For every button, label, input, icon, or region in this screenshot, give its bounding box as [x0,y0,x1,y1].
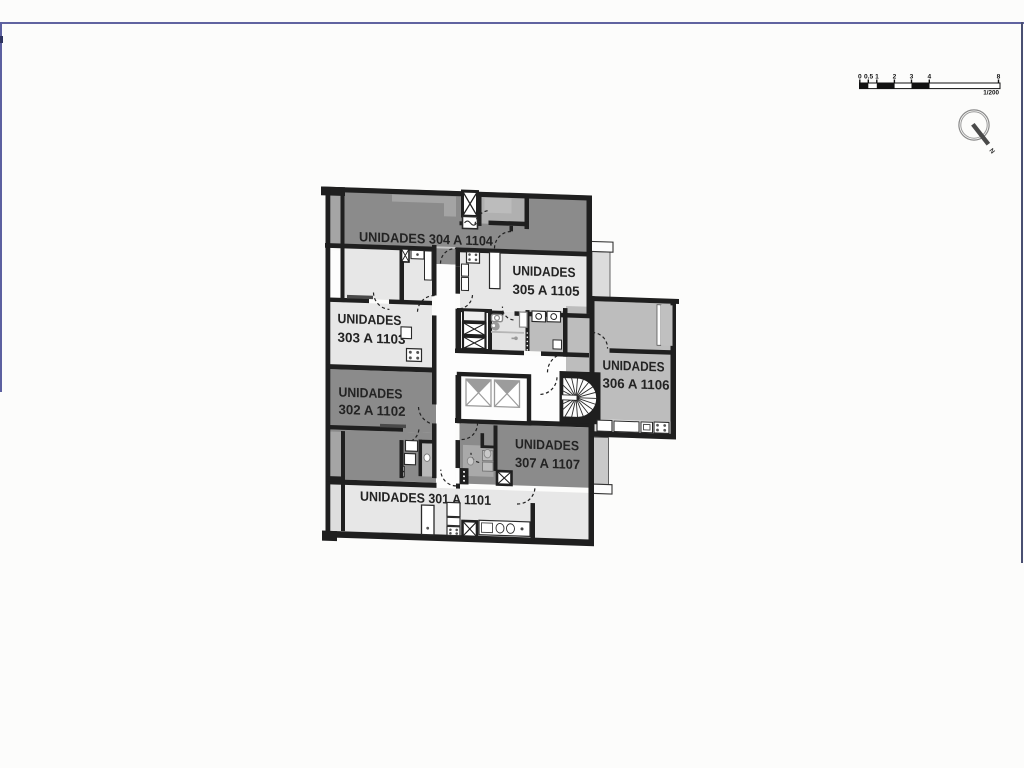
svg-text:UNIDADES: UNIDADES [602,358,664,375]
svg-text:2: 2 [893,74,897,81]
svg-text:306 A 1106: 306 A 1106 [602,376,669,393]
svg-text:307 A 1107: 307 A 1107 [515,455,580,472]
svg-text:0: 0 [858,74,862,81]
svg-text:305 A 1105: 305 A 1105 [513,282,581,299]
svg-text:4: 4 [927,74,931,81]
svg-text:303 A 1103: 303 A 1103 [338,330,406,347]
svg-text:UNIDADES: UNIDADES [338,311,402,328]
svg-text:1: 1 [875,74,879,81]
svg-text:UNIDADES: UNIDADES [339,385,403,402]
svg-text:0.5: 0.5 [864,74,873,81]
svg-text:UNIDADES: UNIDADES [513,263,576,280]
svg-text:3: 3 [910,74,914,81]
svg-text:302 A 1102: 302 A 1102 [339,402,406,419]
svg-text:UNIDADES: UNIDADES [515,436,579,453]
svg-text:8: 8 [997,74,1001,81]
svg-text:1/200: 1/200 [983,89,999,96]
svg-text:N: N [987,147,996,155]
